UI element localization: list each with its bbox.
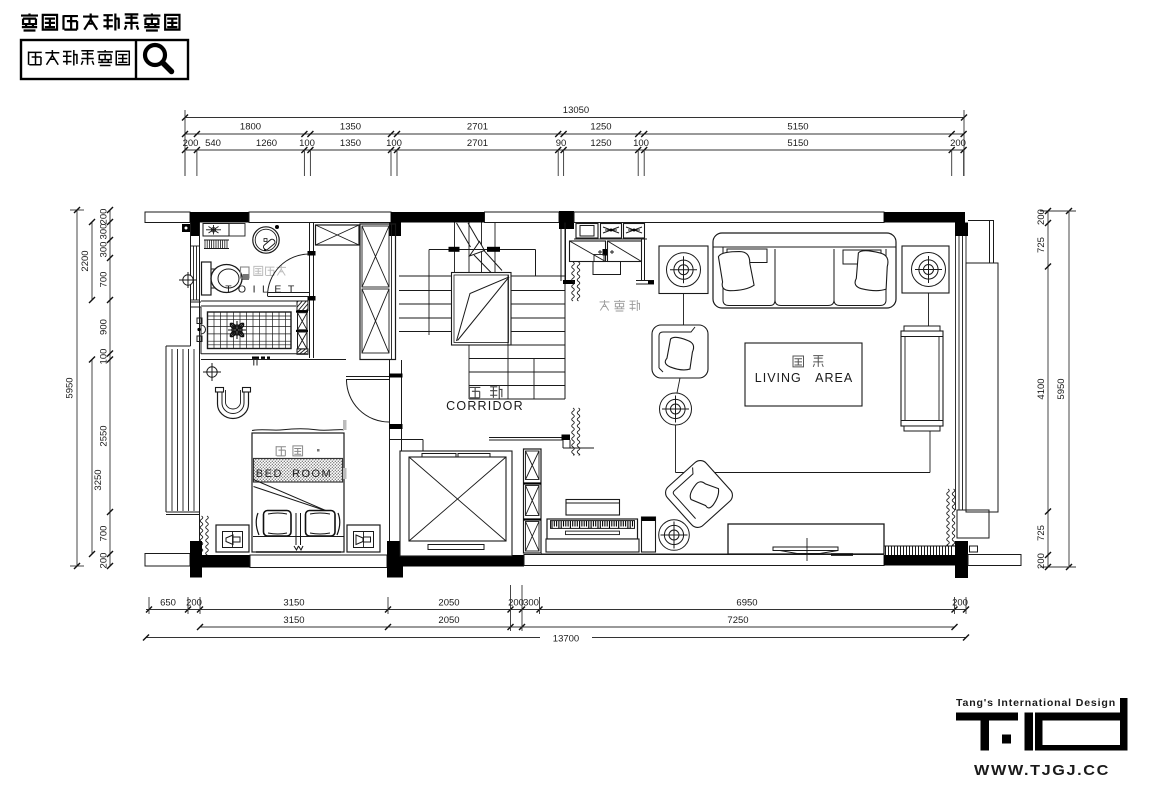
svg-text:1800: 1800	[240, 122, 261, 133]
svg-text:2701: 2701	[467, 122, 488, 133]
svg-text:1350: 1350	[340, 138, 361, 149]
svg-text:LIVING AREA: LIVING AREA	[755, 371, 853, 385]
svg-text:1260: 1260	[256, 138, 277, 149]
svg-text:300: 300	[523, 598, 539, 609]
svg-text:5150: 5150	[787, 122, 808, 133]
svg-text:13700: 13700	[553, 634, 579, 645]
svg-text:5950: 5950	[1056, 378, 1067, 399]
svg-text:WWW.TJGJ.CC: WWW.TJGJ.CC	[974, 762, 1110, 779]
svg-text:100: 100	[633, 138, 649, 149]
svg-text:200: 200	[99, 209, 110, 225]
svg-text:7250: 7250	[727, 615, 748, 626]
svg-text:CORRIDOR: CORRIDOR	[446, 399, 524, 413]
svg-text:1250: 1250	[590, 122, 611, 133]
svg-text:725: 725	[1036, 237, 1047, 253]
svg-text:2200: 2200	[80, 250, 91, 271]
svg-text:2050: 2050	[438, 615, 459, 626]
svg-text:100: 100	[99, 349, 110, 365]
svg-text:5150: 5150	[787, 138, 808, 149]
svg-text:200: 200	[99, 553, 110, 569]
svg-text:1250: 1250	[590, 138, 611, 149]
svg-text:300: 300	[99, 242, 110, 258]
svg-text:200: 200	[950, 138, 966, 149]
svg-text:200: 200	[1036, 553, 1047, 569]
svg-text:100: 100	[386, 138, 402, 149]
svg-text:200: 200	[183, 138, 199, 149]
svg-text:3150: 3150	[283, 615, 304, 626]
svg-text:650: 650	[160, 598, 176, 609]
svg-text:700: 700	[99, 526, 110, 542]
svg-text:TOILET: TOILET	[225, 284, 301, 296]
svg-text:200: 200	[1036, 209, 1047, 225]
svg-text:6950: 6950	[736, 598, 757, 609]
svg-text:BED ROOM: BED ROOM	[256, 468, 332, 480]
svg-text:2701: 2701	[467, 138, 488, 149]
svg-text:700: 700	[99, 272, 110, 288]
svg-text:725: 725	[1036, 525, 1047, 541]
svg-text:5950: 5950	[65, 377, 76, 398]
svg-text:Tang's International Design: Tang's International Design	[956, 698, 1116, 709]
svg-text:1350: 1350	[340, 122, 361, 133]
svg-text:3250: 3250	[93, 469, 104, 490]
svg-text:900: 900	[99, 319, 110, 335]
svg-text:2050: 2050	[438, 598, 459, 609]
svg-text:100: 100	[299, 138, 315, 149]
svg-text:13050: 13050	[563, 105, 589, 116]
svg-text:90: 90	[556, 138, 567, 149]
svg-text:2550: 2550	[99, 425, 110, 446]
svg-text:3150: 3150	[283, 598, 304, 609]
svg-text:540: 540	[205, 138, 221, 149]
svg-text:4100: 4100	[1036, 378, 1047, 399]
svg-text:300: 300	[99, 224, 110, 240]
